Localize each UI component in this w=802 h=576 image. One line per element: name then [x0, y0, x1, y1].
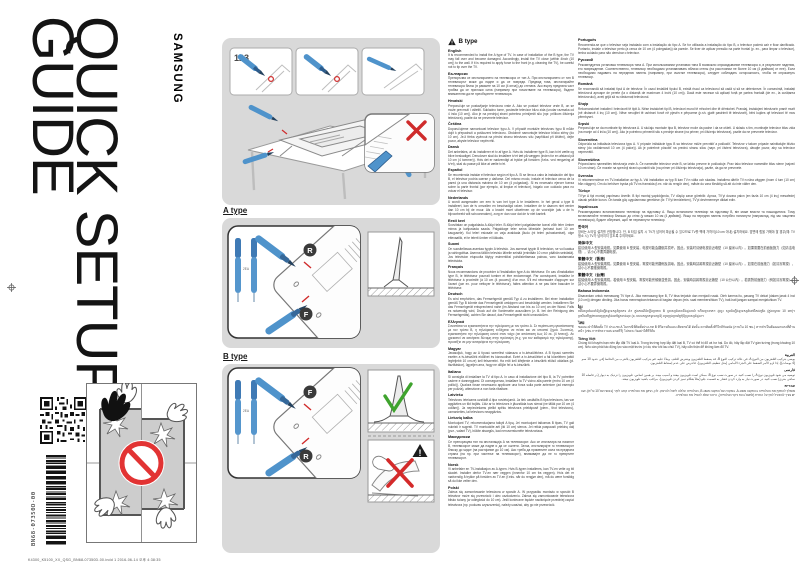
language-section: ខ្មែរ យើងសូមណែនាំឱ្យដំឡើងទូរទស្សន៍ប្រភេទ… [578, 305, 795, 318]
svg-text:R: R [303, 452, 309, 461]
language-section: Български Препоръчва се инсталирането на… [448, 72, 574, 97]
language-name: Български [448, 72, 574, 76]
instructions-column-right: Português Recomenda-se que o televisor s… [578, 38, 795, 400]
language-text: It is recommended to install the A type … [448, 53, 574, 69]
rear-screw-badge: R [304, 244, 317, 257]
svg-text:!: ! [451, 40, 453, 45]
language-name: Srpski [578, 122, 795, 126]
language-name: Español [448, 168, 574, 172]
language-text: Nous recommandons de procéder à l'instal… [448, 270, 574, 290]
language-text: Chúng tôi khuyên bạn nên lắp đặt TV loại… [578, 341, 795, 349]
language-text: Preporučuje se da montirate tip televizo… [578, 126, 795, 134]
language-section: 简体中文 建议使用 A 型安装电视。如果使用 B 型安装，电视可能会翻倒并损坏。… [578, 241, 795, 254]
language-name: Русский [578, 58, 795, 62]
language-section: Latviešu Televizoru ieteicams uzstādīt A… [448, 393, 574, 414]
part-number: BN68-07350D-00 [31, 491, 37, 546]
language-section: Slovenčina Odporúča sa inštalácia televí… [578, 138, 795, 155]
language-text: TV'ye A tipi montaj yapılması önerilir. … [578, 194, 795, 202]
svg-text:F: F [308, 388, 313, 397]
language-text: Vi anbefaler en TV-installasjon av A-typ… [448, 467, 574, 483]
front-screw-badge: F [300, 308, 313, 321]
language-name: Français [448, 265, 574, 269]
language-text: U wordt aangeraden om een tv van het typ… [448, 200, 574, 216]
language-section: Polski Zaleca się zamontowanie telewizor… [448, 486, 574, 507]
language-section: العربية يوصى بتركيب التلفزيون من النوع A… [578, 353, 795, 366]
language-text: 장비는 A 타입 설치를 권장합니다. 단, B 타입 설치 시 TV가 넘어져… [578, 230, 795, 238]
registration-mark-icon [7, 283, 16, 292]
language-text: Priporočamo namestitev televizorja vrste… [578, 162, 795, 170]
a-type-illustration: 2EA R F [222, 218, 440, 348]
language-text: Συνιστάται να εγκαταστήσετε την τηλεόρασ… [448, 324, 574, 344]
language-name: Ελληνικά [448, 320, 574, 324]
qr-code-image [40, 397, 87, 444]
language-name: Shqip [578, 102, 795, 106]
language-name: עברית [578, 384, 795, 388]
language-name: Македонски [448, 435, 574, 439]
language-text: Препоръчва се инсталирането на телевизор… [448, 76, 574, 96]
language-text: Рекомендовано встановлювати телевізор на… [578, 210, 795, 222]
language-text: Vi rekommenderar en TV-installation av t… [578, 178, 795, 186]
language-text: យើងសូមណែនាំឱ្យដំឡើងទូរទស្សន៍ប្រភេទ A។ ក្… [578, 309, 795, 317]
language-name: Deutsch [448, 292, 574, 296]
language-section: Türkçe TV'ye A tipi montaj yapılması öne… [578, 189, 795, 202]
language-text: Се препорачува тип на инсталација A на т… [448, 440, 574, 460]
language-section: Українська Рекомендовано встановлювати т… [578, 205, 795, 222]
language-section: 한국어 장비는 A 타입 설치를 권장합니다. 단, B 타입 설치 시 TV가… [578, 225, 795, 238]
language-section: Italiano Si consiglia di installare la T… [448, 370, 574, 391]
language-name: Polski [448, 486, 574, 490]
language-section: English It is recommended to install the… [448, 49, 574, 70]
language-list-right: Português Recomenda-se que o televisor s… [578, 38, 795, 397]
language-section: Română Se recomandă să instalați tipul A… [578, 82, 795, 99]
qr-code [40, 397, 87, 444]
language-name: العربية [578, 353, 795, 357]
svg-text:F: F [304, 310, 309, 319]
language-section: Srpski Preporučuje se da montirate tip t… [578, 122, 795, 135]
a-type-label: A type [223, 206, 247, 215]
samsung-logo: SAMSUNG [171, 33, 183, 104]
language-section: Suomi On suositeltavaa asentaa tyypin A … [448, 242, 574, 263]
language-text: Рекомендуется установка телевизора типа … [578, 63, 795, 79]
language-section: Eesti keel Soovitatav on paigaldada A-tü… [448, 219, 574, 240]
language-name: Română [578, 82, 795, 86]
language-text: Montuojant TV, rekomenduojama taikyti A … [448, 421, 574, 433]
print-footer: K4300_K5100_XX_QSG_BN68-07350D-00.indd 1… [28, 558, 161, 563]
language-name: Português [578, 38, 795, 42]
language-section: فارسی توصیه می شود تلویزیون نوع A را نصب… [578, 368, 795, 381]
language-section: Македонски Се препорачува тип на инстала… [448, 435, 574, 460]
b-type-header-label: B type [459, 38, 478, 45]
language-name: Dansk [448, 145, 574, 149]
language-text: 建议使用 A 型安装电视。如果使用 B 型安装，电视可能会翻倒并损坏。因此，安装… [578, 246, 795, 254]
language-section: Português Recomenda-se que o televisor s… [578, 38, 795, 55]
language-name: Latviešu [448, 393, 574, 397]
language-text: 建議使用 A 型安裝電視。如果使用 B 型安裝，電視可能會翻側及損壞。因此，安裝… [578, 262, 795, 270]
language-name: Lietuvių kalba [448, 416, 574, 420]
language-name: Svenska [578, 174, 795, 178]
language-text: On suositeltavaa asentaa tyypin A televi… [448, 247, 574, 263]
language-text: Disarankan untuk memasang TV tipe A. Jik… [578, 294, 795, 302]
language-section: Dansk Det anbefales, at du installerer e… [448, 145, 574, 166]
language-name: 繁體中文（香港） [578, 257, 795, 261]
language-section: Magyar Javasoljuk, hogy az A típusú szer… [448, 347, 574, 368]
barcode [46, 455, 66, 545]
language-section: 繁體中文（台灣） 建議使用 A 型安裝電視。若使用 B 型安裝，電視可能會傾倒並… [578, 273, 795, 286]
language-name: Magyar [448, 347, 574, 351]
language-text: Rekomandohet instalimi i televizorit të … [578, 107, 795, 119]
language-name: Bahasa Indonesia [578, 289, 795, 293]
language-name: Italiano [448, 370, 574, 374]
language-text: Recomenda-se que o televisor seja instal… [578, 43, 795, 55]
language-section: ไทย ขอแนะนำให้ติดตั้ง TV ประเภท A ในกรณี… [578, 321, 795, 334]
b-type-illustration: 2EA F R [222, 364, 440, 553]
tv-side-view [368, 232, 434, 296]
quick-setup-guide-page: QUICK SETUP GUIDE SAMSUNG 123 [0, 0, 802, 576]
warning-triangle-icon: ! [448, 38, 456, 46]
language-name: Norsk [448, 463, 574, 467]
svg-text:R: R [307, 246, 313, 255]
page-title: QUICK SETUP GUIDE [30, 16, 118, 398]
language-text: Preporučuje se postavljanje televizora v… [448, 104, 574, 120]
assembly-overview-illustration: 123 [222, 38, 440, 205]
language-name: Українська [578, 205, 795, 209]
language-name: Suomi [448, 242, 574, 246]
language-name: فارسی [578, 368, 795, 372]
language-name: Hrvatski [448, 99, 574, 103]
no-touch-warning-diagram [86, 383, 197, 543]
language-section: Čeština Doporučujeme namontovat televizo… [448, 122, 574, 143]
language-text: Televizoru ieteicams uzstādīt A tipa nov… [448, 398, 574, 414]
language-name: Čeština [448, 122, 574, 126]
tool-quantity-label: 2EA [243, 409, 250, 413]
language-name: Eesti keel [448, 219, 574, 223]
rear-screw-badge: R [300, 450, 313, 463]
a-type-diagram: 2EA R F [222, 218, 440, 348]
language-name: 繁體中文（台灣） [578, 273, 795, 277]
language-section: Slovenščina Priporočamo namestitev telev… [578, 158, 795, 171]
language-section: Norsk Vi anbefaler en TV-installasjon av… [448, 463, 574, 484]
language-section: Svenska Vi rekommenderar en TV-installat… [578, 174, 795, 187]
language-text: Odporúča sa inštalácia televízora typu A… [578, 142, 795, 154]
language-name: Nederlands [448, 196, 574, 200]
language-text: Soovitatav on paigaldada A-tüüpi teler. … [448, 223, 574, 239]
language-section: Français Nous recommandons de procéder à… [448, 265, 574, 290]
language-text: Javasoljuk, hogy az A típusú szerelést v… [448, 351, 574, 367]
language-section: Tiếng Việt Chúng tôi khuyên bạn nên lắp … [578, 337, 795, 350]
language-section: Bahasa Indonesia Disarankan untuk memasa… [578, 289, 795, 302]
language-text: Se recomienda instalar el televisor segú… [448, 173, 574, 193]
language-text: Si consiglia di installare la TV di tipo… [448, 375, 574, 391]
language-text: Se recomandă să instalați tipul A de tel… [578, 87, 795, 99]
language-name: Türkçe [578, 189, 795, 193]
language-section: Español Se recomienda instalar el televi… [448, 168, 574, 193]
correct-installation-view [368, 370, 434, 432]
language-text: توصیه می شود تلویزیون نوع A را نصب کنید.… [578, 373, 795, 381]
b-type-label: B type [223, 352, 247, 361]
language-text: Doporučujeme namontovat televizor typu A… [448, 127, 574, 143]
language-section: Deutsch Es wird empfohlen, das Fernsehge… [448, 292, 574, 317]
language-text: Es wird empfohlen, das Fernsehgerät gemä… [448, 297, 574, 317]
language-text: 建議使用 A 型安裝電視。若使用 B 型安裝，電視可能會傾倒並受損。因此，安裝時… [578, 278, 795, 286]
b-type-diagram: 2EA F R [222, 364, 440, 553]
language-name: Slovenčina [578, 138, 795, 142]
language-name: 简体中文 [578, 241, 795, 245]
language-text: ขอแนะนำให้ติดตั้ง TV ประเภท A ในกรณีที่ต… [578, 325, 795, 333]
language-section: Lietuvių kalba Montuojant TV, rekomenduo… [448, 416, 574, 433]
tool-quantity-label: 2EA [243, 267, 250, 271]
b-type-warning-header: ! B type [448, 38, 574, 46]
language-section: Shqip Rekomandohet instalimi i televizor… [578, 102, 795, 119]
svg-text:!: ! [419, 448, 422, 458]
no-touch-warning-illustration [86, 383, 197, 543]
language-name: English [448, 49, 574, 53]
language-section: 繁體中文（香港） 建議使用 A 型安裝電視。如果使用 B 型安裝，電視可能會翻側… [578, 257, 795, 270]
language-section: עברית מומלץ להתקין את הטלוויזיה בהתקנה מ… [578, 384, 795, 397]
language-list-left: English It is recommended to install the… [448, 49, 574, 507]
language-text: يوصى بتركيب التلفزيون من النوع A. في حال… [578, 357, 795, 365]
language-text: Zaleca się zamontowanie telewizora w spo… [448, 490, 574, 506]
language-name: 한국어 [578, 225, 795, 229]
instructions-column-left: ! B type English It is recommended to in… [448, 38, 574, 509]
language-section: Русский Рекомендуется установка телевизо… [578, 58, 795, 79]
front-screw-badge: F [304, 386, 317, 399]
incorrect-installation-view: ! [368, 440, 434, 502]
language-section: Nederlands U wordt aangeraden om een tv … [448, 196, 574, 217]
language-text: מומלץ להתקין את הטלוויזיה בהתקנה מסוג A.… [578, 389, 795, 397]
language-section: Hrvatski Preporučuje se postavljanje tel… [448, 99, 574, 120]
language-section: Ελληνικά Συνιστάται να εγκαταστήσετε την… [448, 320, 574, 345]
language-text: Det anbefales, at du installerer et tv a… [448, 150, 574, 166]
assembly-overview-diagram: 123 [222, 38, 440, 205]
